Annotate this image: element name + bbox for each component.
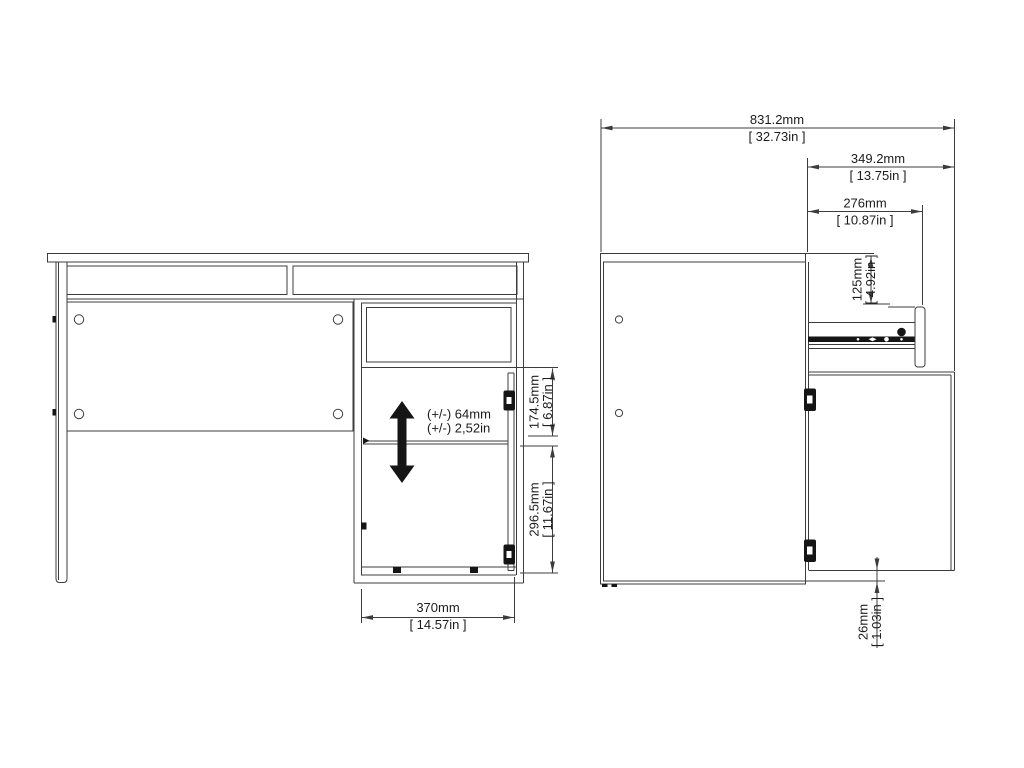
technical-drawing-page: (+/-) 64mm (+/-) 2,52in 174.5mm [ 6.87in… bbox=[0, 0, 1024, 768]
dim-upper-section: 174.5mm [ 6.87in ] bbox=[527, 369, 559, 437]
shelf-mark bbox=[363, 438, 370, 444]
side-panel bbox=[600, 254, 885, 588]
dim-text: [ 6.87in ] bbox=[540, 377, 555, 427]
drawer-extended bbox=[808, 307, 925, 367]
drawer-opening bbox=[367, 308, 512, 363]
dim-text: [ 10.87in ] bbox=[836, 213, 893, 228]
cam-mark bbox=[53, 409, 57, 416]
door-open bbox=[804, 372, 955, 571]
dim-text: [ 13.75in ] bbox=[849, 168, 906, 183]
drawer-slide-rail bbox=[808, 337, 915, 343]
dim-text: 370mm bbox=[416, 600, 459, 615]
shelf-pin bbox=[361, 523, 367, 530]
cam-hole bbox=[615, 409, 622, 416]
left-leg bbox=[53, 262, 68, 583]
foot-glide bbox=[602, 584, 608, 587]
dim-lower-section: 296.5mm [ 11.67in ] bbox=[520, 446, 558, 573]
side-view: 831.2mm [ 32.73in ] 349.2mm [ 13.75in ] … bbox=[600, 112, 955, 648]
adjustable-shelf bbox=[363, 438, 508, 445]
cam-mark bbox=[53, 316, 57, 323]
slide-knob bbox=[897, 328, 906, 337]
front-view: (+/-) 64mm (+/-) 2,52in 174.5mm [ 6.87in… bbox=[48, 254, 559, 633]
dim-drawer-front-height: 125mm [ 4.92in ] bbox=[850, 255, 891, 305]
shelf-adjust-imperial: (+/-) 2,52in bbox=[427, 421, 490, 436]
shelf-adjust-arrow: (+/-) 64mm (+/-) 2,52in bbox=[390, 401, 491, 483]
double-arrow-icon bbox=[390, 401, 415, 483]
foot-glide bbox=[470, 567, 478, 573]
dim-text: 831.2mm bbox=[750, 112, 804, 127]
dim-cabinet-width: 370mm [ 14.57in ] bbox=[362, 577, 515, 632]
foot-glide bbox=[393, 567, 401, 573]
dim-text: 349.2mm bbox=[851, 151, 905, 166]
dim-text: [ 1.03in ] bbox=[869, 597, 884, 647]
dim-text: [ 14.57in ] bbox=[409, 617, 466, 632]
desk-dimension-drawing: (+/-) 64mm (+/-) 2,52in 174.5mm [ 6.87in… bbox=[0, 0, 1024, 768]
door-edge bbox=[504, 373, 516, 571]
dim-text: [ 32.73in ] bbox=[748, 129, 805, 144]
dim-text: [ 11.67in ] bbox=[540, 481, 555, 537]
cam-hole bbox=[615, 316, 622, 323]
dim-text: [ 4.92in ] bbox=[863, 255, 878, 305]
dim-text: 276mm bbox=[843, 196, 886, 211]
back-panel bbox=[67, 302, 353, 431]
shelf-adjust-metric: (+/-) 64mm bbox=[427, 407, 491, 422]
drawer-backs bbox=[67, 266, 523, 299]
desktop bbox=[48, 254, 529, 263]
drawer-front-edge bbox=[915, 307, 925, 367]
foot-glide bbox=[612, 584, 618, 587]
